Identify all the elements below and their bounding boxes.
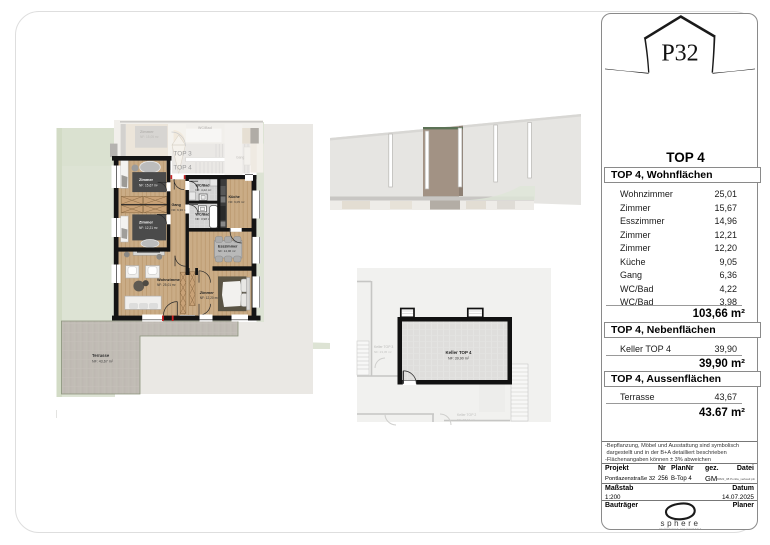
svg-text:NF: 39,90 m²: NF: 39,90 m² bbox=[448, 357, 470, 361]
svg-text:TOP 3: TOP 3 bbox=[174, 151, 193, 158]
svg-text:Küche: Küche bbox=[229, 195, 240, 199]
svg-text:NF: 15,05 m²: NF: 15,05 m² bbox=[140, 135, 159, 139]
svg-text:Zimmer: Zimmer bbox=[140, 130, 154, 134]
svg-text:NF: 15,67 m²: NF: 15,67 m² bbox=[139, 183, 158, 187]
svg-text:NF: 12,21 m²: NF: 12,21 m² bbox=[139, 226, 158, 230]
svg-text:architecture environments: architecture environments bbox=[659, 528, 702, 531]
svg-text:Zimmer: Zimmer bbox=[139, 177, 154, 182]
svg-text:NF: 38,12 m²: NF: 38,12 m² bbox=[457, 418, 475, 422]
svg-text:P32: P32 bbox=[661, 41, 698, 67]
svg-text:NF: 9,05 m²: NF: 9,05 m² bbox=[229, 200, 245, 204]
svg-text:Gang: Gang bbox=[172, 203, 181, 207]
svg-text:NF: 43,67 m²: NF: 43,67 m² bbox=[92, 360, 114, 364]
svg-text:TOP 4: TOP 4 bbox=[174, 165, 193, 172]
svg-text:NF: 3,98 m²: NF: 3,98 m² bbox=[195, 217, 211, 221]
svg-text:NF: 14,96 m²: NF: 14,96 m² bbox=[218, 249, 236, 253]
svg-text:NF: 12,20 m²: NF: 12,20 m² bbox=[200, 296, 219, 300]
svg-text:NF: 23,45 m²: NF: 23,45 m² bbox=[374, 350, 392, 354]
svg-text:Esszimmer: Esszimmer bbox=[218, 244, 238, 248]
svg-text:Gang: Gang bbox=[236, 156, 244, 160]
svg-text:Zimmer: Zimmer bbox=[139, 220, 154, 225]
svg-text:Keller TOP 4: Keller TOP 4 bbox=[446, 350, 473, 355]
svg-text:Terrasse: Terrasse bbox=[92, 353, 110, 358]
svg-text:NF: 6,36 m²: NF: 6,36 m² bbox=[172, 208, 188, 212]
svg-text:Wohnzimmer: Wohnzimmer bbox=[157, 277, 182, 282]
svg-text:Zimmer: Zimmer bbox=[199, 290, 215, 295]
svg-text:sphere: sphere bbox=[660, 519, 700, 528]
svg-text:WC/Bad: WC/Bad bbox=[195, 213, 210, 217]
svg-text:Keller TOP 3: Keller TOP 3 bbox=[374, 345, 393, 349]
svg-text:Keller TOP 2: Keller TOP 2 bbox=[457, 413, 476, 417]
svg-text:NF: 25,01 m²: NF: 25,01 m² bbox=[157, 283, 176, 287]
svg-text:WC/Bad: WC/Bad bbox=[198, 126, 212, 130]
